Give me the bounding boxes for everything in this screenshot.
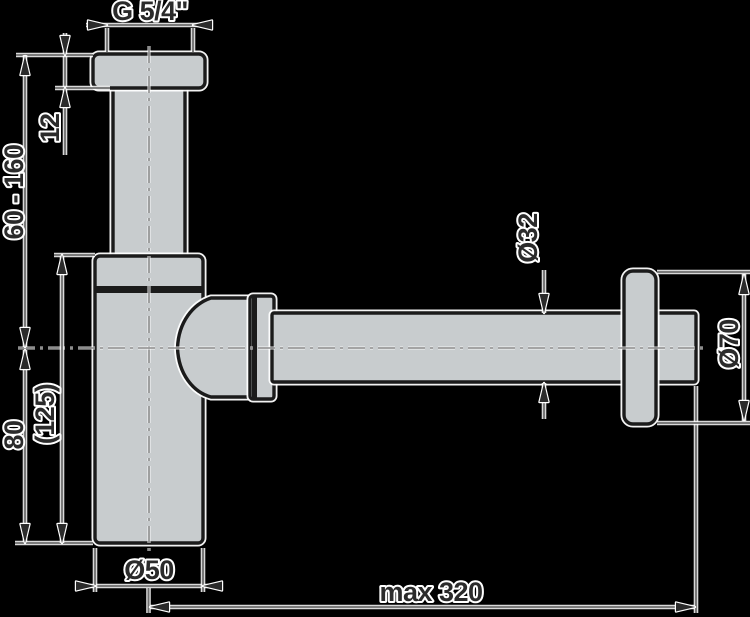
dim-thread-label: G 5/4" [112, 0, 188, 26]
dim-max-reach-label: max 320 [379, 577, 482, 607]
dim-body-diameter-label: Ø50 [124, 555, 174, 585]
dim-body-height-label: (125) [30, 384, 60, 445]
siphon-dimension-drawing: G 5/4" 12 60 - 160 80 (1 [0, 0, 750, 617]
dim-pipe-diameter-label: Ø32 [513, 213, 543, 263]
dim-outlet-height-label: 80 [0, 420, 29, 449]
dim-rosette-diameter-label: Ø70 [714, 319, 744, 369]
dim-flange-thickness-label: 12 [35, 113, 65, 142]
dim-height-adjust-label: 60 - 160 [0, 144, 29, 239]
technical-drawing-canvas: G 5/4" 12 60 - 160 80 (1 [0, 0, 750, 617]
